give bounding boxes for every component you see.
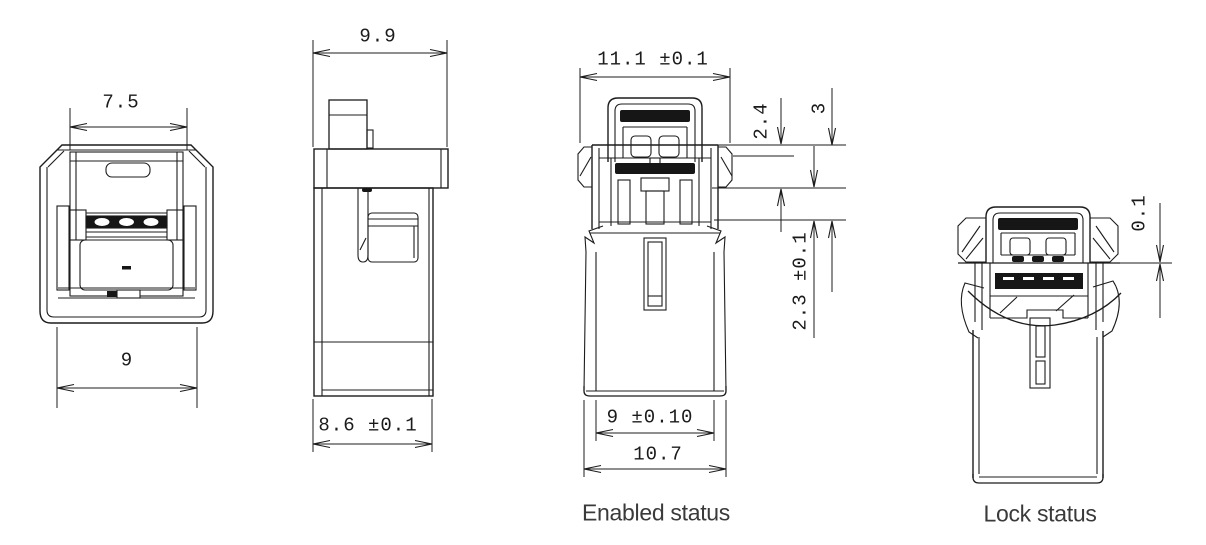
drawing-linework <box>0 0 1206 545</box>
lock-status-view <box>958 203 1172 483</box>
enabled-right-upper-dim: 2.4 <box>753 102 772 139</box>
side-view-part <box>314 100 448 396</box>
enabled-bottom-outer-dim: 10.7 <box>633 446 683 465</box>
side-top-width-dim: 9.9 <box>359 28 396 47</box>
front-view-part <box>40 145 213 323</box>
front-top-width-dim: 7.5 <box>102 94 139 113</box>
enabled-status-label: Enabled status <box>582 502 730 525</box>
lock-view-part <box>958 207 1121 483</box>
enabled-right-outer-dim: 3 <box>811 102 830 114</box>
lock-status-label: Lock status <box>983 503 1096 526</box>
enabled-bottom-inner-dim: 9 ±0.10 <box>607 409 694 428</box>
lock-gap-dim: 0.1 <box>1131 194 1150 231</box>
technical-drawing-canvas: 7.5 9 9.9 8.6 ±0.1 11.1 ±0.1 2.4 3 2.3 ±… <box>0 0 1206 545</box>
enabled-top-width-dim: 11.1 ±0.1 <box>597 51 709 70</box>
front-bottom-width-dim: 9 <box>121 352 133 371</box>
enabled-right-lower-dim: 2.3 ±0.1 <box>792 231 811 330</box>
side-bottom-width-dim: 8.6 ±0.1 <box>318 417 417 436</box>
side-view <box>313 40 448 452</box>
enabled-view-part <box>578 98 732 396</box>
